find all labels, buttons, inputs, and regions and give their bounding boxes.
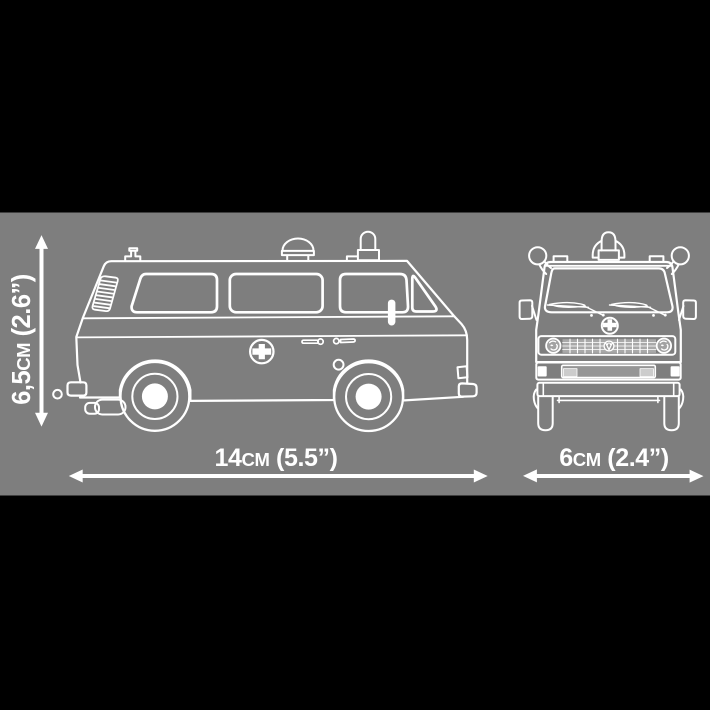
svg-text:6,5CM (2.6”): 6,5CM (2.6”) <box>8 274 36 405</box>
svg-text:14CM (5.5”): 14CM (5.5”) <box>214 444 337 472</box>
svg-text:6CM (2.4”): 6CM (2.4”) <box>559 444 669 472</box>
